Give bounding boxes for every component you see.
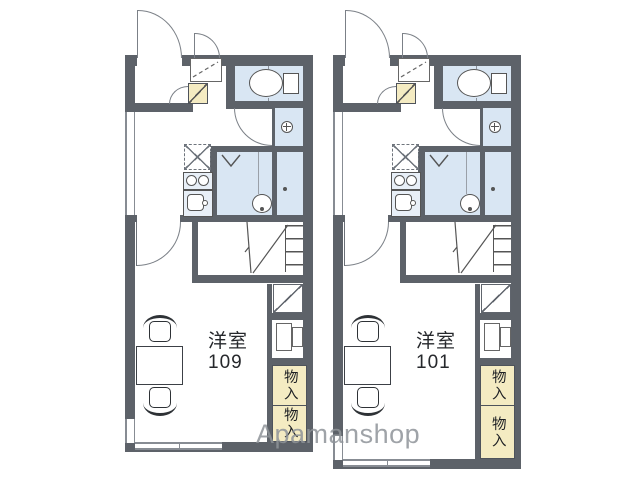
sink-icon — [183, 190, 213, 217]
ac-unit-icon — [292, 327, 303, 347]
wall-under-ac — [267, 358, 308, 365]
overhead-cabinet — [398, 58, 430, 82]
wall-entry-bottom — [125, 103, 193, 112]
stair-diagonal-line — [459, 223, 499, 275]
hall-door-swing-icon — [377, 86, 396, 104]
bath-door-line — [466, 152, 467, 194]
west-window-lower — [125, 419, 135, 443]
window-mullion — [387, 461, 389, 465]
wall-midroom-left — [192, 222, 198, 283]
room-label: 洋室 109 — [208, 332, 248, 374]
toilet-tank-icon — [283, 73, 299, 94]
wall-under-stair — [267, 313, 308, 320]
washing-machine-icon — [489, 121, 501, 133]
shoe-cabinet-icon — [396, 83, 416, 104]
fridge-space-icon — [392, 144, 419, 170]
toilet-tank-icon — [491, 73, 507, 94]
folding-door-icon — [429, 154, 449, 168]
closet: 物入 — [272, 365, 307, 406]
wall-toilet-left — [226, 66, 235, 101]
door-opening — [137, 215, 180, 222]
wall-midroom-bottom — [400, 275, 511, 283]
room-door-swing-icon — [345, 222, 389, 266]
washer-door-swing-icon — [442, 108, 480, 146]
west-window-upper — [125, 107, 135, 215]
chair-icon — [143, 403, 177, 416]
west-window-upper — [333, 107, 343, 215]
entry-door-swing-icon — [138, 10, 182, 58]
wall-entry-bottom — [333, 103, 401, 112]
door-opening — [345, 215, 388, 222]
bathtub-icon — [252, 194, 272, 213]
room-door-swing-icon — [137, 222, 181, 266]
burner-icon — [198, 175, 209, 186]
wall-under-stair — [475, 313, 516, 320]
closet-label: 物入 — [490, 416, 505, 449]
toilet-icon — [249, 69, 283, 97]
dashed-diagonal — [191, 59, 221, 80]
toilet-icon — [457, 69, 491, 97]
room-number: 101 — [416, 353, 456, 374]
fridge-space-icon — [184, 144, 211, 170]
unit-109: 物入 物入 洋室 109 — [125, 55, 313, 452]
room-type: 洋室 — [208, 332, 248, 353]
closet-label: 物入 — [490, 369, 505, 402]
bath-door-line — [258, 152, 259, 194]
wall-midroom-bottom — [192, 275, 303, 283]
drain-icon — [202, 200, 208, 206]
room-number: 109 — [208, 353, 248, 374]
stair-landing-icon — [273, 284, 303, 313]
closet: 物入 — [480, 405, 515, 459]
shower-dot-icon — [283, 187, 287, 191]
folding-door-icon — [221, 154, 241, 168]
ac-unit-icon — [484, 323, 500, 351]
shoe-cabinet-icon — [188, 83, 208, 104]
window-mullion — [179, 444, 181, 448]
wall-bath-divider — [480, 152, 485, 215]
ac-unit-icon — [500, 327, 511, 347]
wall-midroom-left — [400, 222, 406, 283]
sink-icon — [391, 190, 421, 217]
closet-label: 物入 — [282, 369, 297, 402]
wall-under-ac — [475, 358, 516, 365]
table-icon — [136, 346, 183, 385]
bathtub-icon — [460, 194, 480, 213]
entry-door-swing-icon — [346, 10, 390, 58]
wall-toilet-left — [434, 66, 443, 101]
chair-icon — [149, 321, 171, 342]
vestibule-door-swing-icon — [403, 33, 428, 58]
washing-machine-icon — [281, 121, 293, 133]
drain-icon — [410, 200, 416, 206]
hall-door-swing-icon — [169, 86, 188, 104]
stove-icon — [183, 172, 213, 190]
floorplan-image: 物入 物入 洋室 109 — [0, 0, 640, 485]
washer-door-swing-icon — [234, 108, 272, 146]
closet: 物入 — [480, 365, 515, 406]
tub-drain-icon — [468, 207, 472, 211]
room-label: 洋室 101 — [416, 332, 456, 374]
wall-bath-divider — [272, 152, 277, 215]
stair-landing-icon — [481, 284, 511, 313]
burner-icon — [406, 175, 417, 186]
watermark: Apamanshop — [256, 419, 420, 450]
south-window — [135, 442, 222, 450]
tub-drain-icon — [260, 207, 264, 211]
chair-icon — [351, 403, 385, 416]
burner-icon — [394, 175, 405, 186]
burner-icon — [186, 175, 197, 186]
south-window — [343, 459, 430, 467]
vestibule-door-swing-icon — [195, 33, 220, 58]
room-type: 洋室 — [416, 332, 456, 353]
unit-101: 物入 物入 洋室 101 — [333, 55, 521, 469]
chair-icon — [357, 321, 379, 342]
stove-icon — [391, 172, 421, 190]
shower-dot-icon — [491, 187, 495, 191]
overhead-cabinet — [190, 58, 222, 82]
ac-unit-icon — [276, 323, 292, 351]
dashed-diagonal — [399, 59, 429, 80]
stair-diagonal-line — [251, 223, 291, 275]
table-icon — [344, 346, 391, 385]
